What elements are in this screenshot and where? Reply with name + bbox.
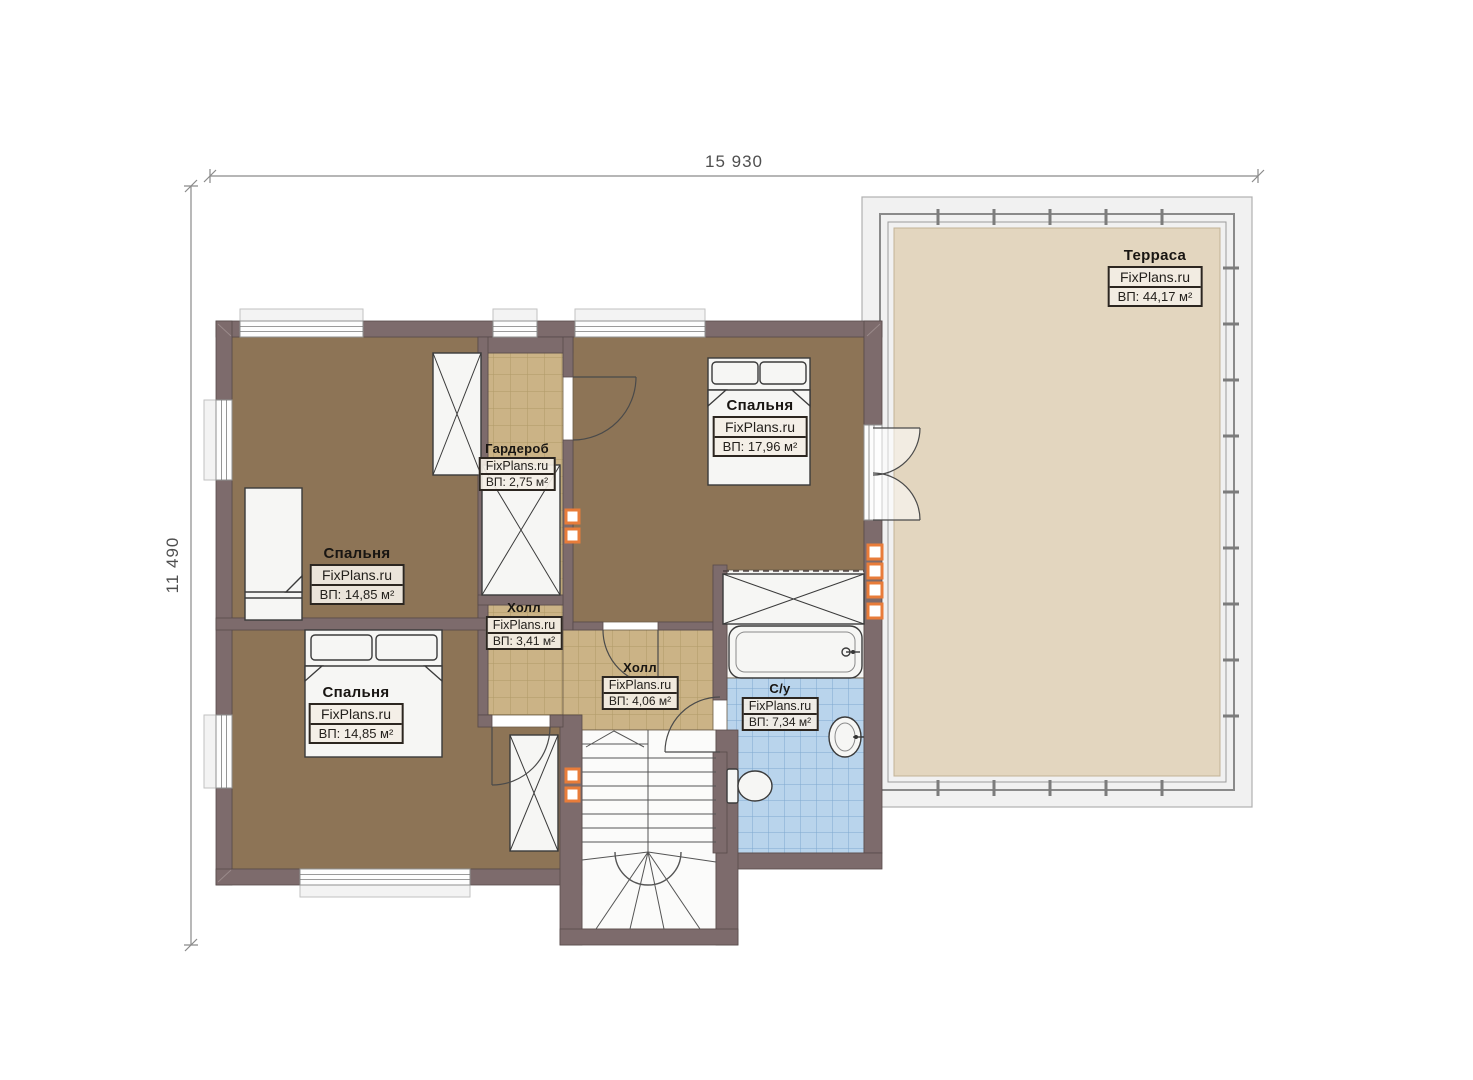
toilet [727,769,772,803]
vent-marker [566,788,579,801]
watermark-text: FixPlans.ru [488,618,561,634]
room-title: С/у [742,681,819,696]
room-area: ВП: 14,85 м² [312,586,403,603]
vent-marker [566,529,579,542]
room-title: Спальня [309,684,404,701]
bed-single [245,488,302,620]
wardrobe-unit-bathroom [723,574,864,624]
room-title: Гардероб [479,441,556,456]
room-title: Спальня [713,397,808,414]
window-left-lower [216,715,232,788]
watermark-text: FixPlans.ru [481,459,554,475]
window-top-left [240,321,363,337]
watermark-text: FixPlans.ru [715,418,806,438]
room-info-box: FixPlans.ru ВП: 14,85 м² [309,703,404,744]
room-title: Терраса [1108,247,1203,264]
vent-marker [868,545,882,559]
room-area: ВП: 3,41 м² [488,634,561,648]
vent-marker [868,583,882,597]
room-area: ВП: 2,75 м² [481,475,554,489]
wardrobe-unit-top [433,353,481,475]
room-area: ВП: 14,85 м² [311,725,402,742]
room-info-box: FixPlans.ru ВП: 44,17 м² [1108,266,1203,307]
dimension-height-label: 11 490 [163,537,183,594]
vent-marker [868,564,882,578]
stairwell-floor [582,730,716,929]
window-top-right [575,321,705,337]
window-left-upper [216,400,232,480]
watermark-text: FixPlans.ru [744,699,817,715]
window-top-middle [493,321,537,337]
room-label-wardrobe: Гардероб FixPlans.ru ВП: 2,75 м² [479,441,556,491]
terrace-floor [894,228,1220,776]
room-area: ВП: 7,34 м² [744,715,817,729]
room-area: ВП: 4,06 м² [604,694,677,708]
room-label-bedroom-middle-left: Спальня FixPlans.ru ВП: 14,85 м² [310,545,405,605]
watermark-text: FixPlans.ru [312,566,403,586]
room-title: Холл [486,600,563,615]
watermark-text: FixPlans.ru [311,705,402,725]
room-label-hall-upper: Холл FixPlans.ru ВП: 3,41 м² [486,600,563,650]
room-label-terrace: Терраса FixPlans.ru ВП: 44,17 м² [1108,247,1203,307]
vent-marker [566,510,579,523]
room-label-bedroom-bottom-left: Спальня FixPlans.ru ВП: 14,85 м² [309,684,404,744]
vent-marker [566,769,579,782]
room-info-box: FixPlans.ru ВП: 14,85 м² [310,564,405,605]
dimension-width-value: 15 930 [705,152,763,171]
room-title: Холл [602,660,679,675]
wardrobe-unit-stair [510,735,558,851]
room-label-hall-lower: Холл FixPlans.ru ВП: 4,06 м² [602,660,679,710]
room-info-box: FixPlans.ru ВП: 7,34 м² [742,697,819,731]
room-area: ВП: 44,17 м² [1110,288,1201,305]
room-label-bathroom: С/у FixPlans.ru ВП: 7,34 м² [742,681,819,731]
room-label-bedroom-top-right: Спальня FixPlans.ru ВП: 17,96 м² [713,397,808,457]
watermark-text: FixPlans.ru [1110,268,1201,288]
dimension-height-value: 11 490 [163,537,182,594]
room-area: ВП: 17,96 м² [715,438,806,455]
dimension-width-label: 15 930 [705,152,763,172]
bathtub [729,626,862,678]
room-info-box: FixPlans.ru ВП: 2,75 м² [479,457,556,491]
window-bottom [300,869,470,885]
room-title: Спальня [310,545,405,562]
watermark-text: FixPlans.ru [604,678,677,694]
room-info-box: FixPlans.ru ВП: 4,06 м² [602,676,679,710]
room-info-box: FixPlans.ru ВП: 3,41 м² [486,616,563,650]
vent-marker [868,604,882,618]
floor-plan-canvas: 15 930 11 490 Терраса FixPlans.ru ВП: 44… [0,0,1473,1080]
room-info-box: FixPlans.ru ВП: 17,96 м² [713,416,808,457]
